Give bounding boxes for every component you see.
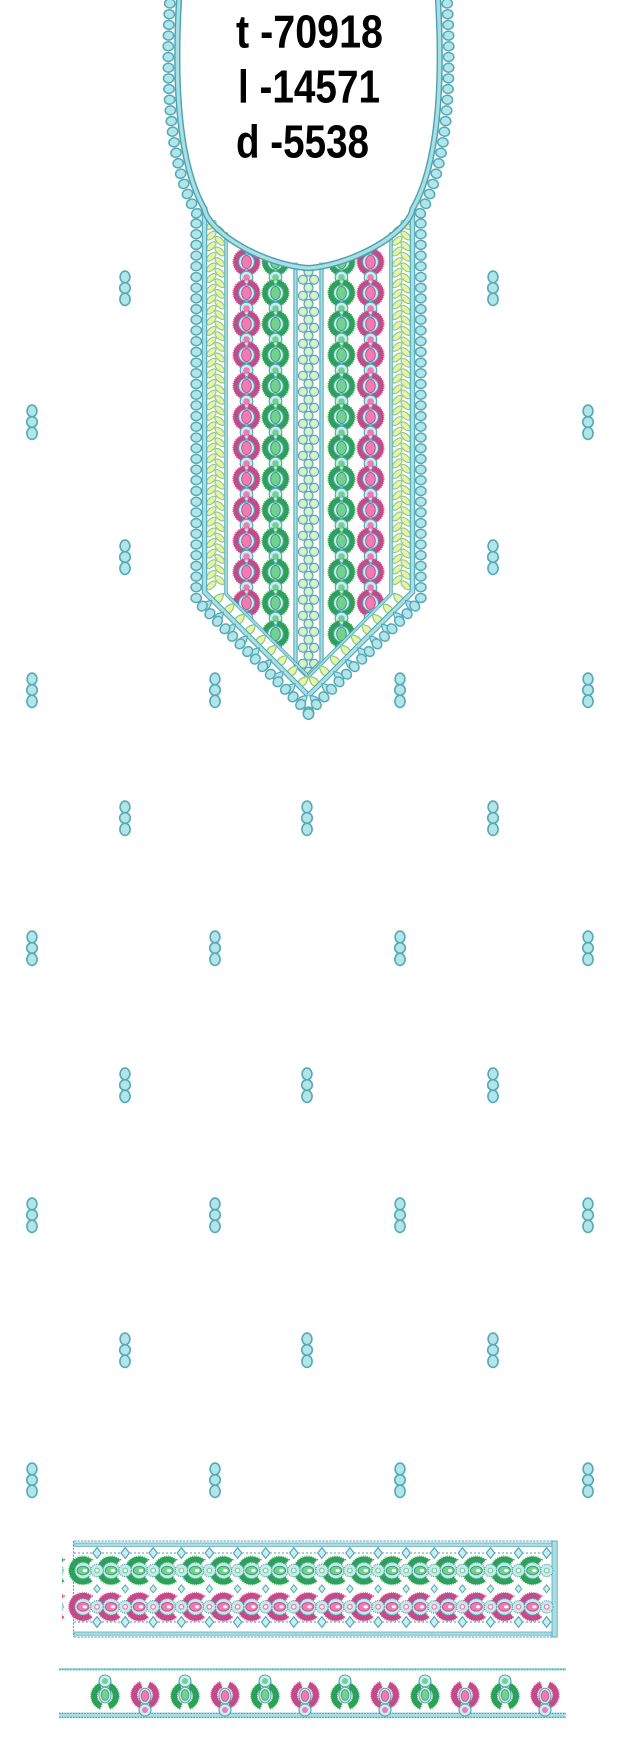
svg-text:t -70918: t -70918 (236, 6, 383, 58)
svg-text:l -14571: l -14571 (238, 61, 380, 113)
svg-text:d -5538: d -5538 (236, 116, 369, 168)
